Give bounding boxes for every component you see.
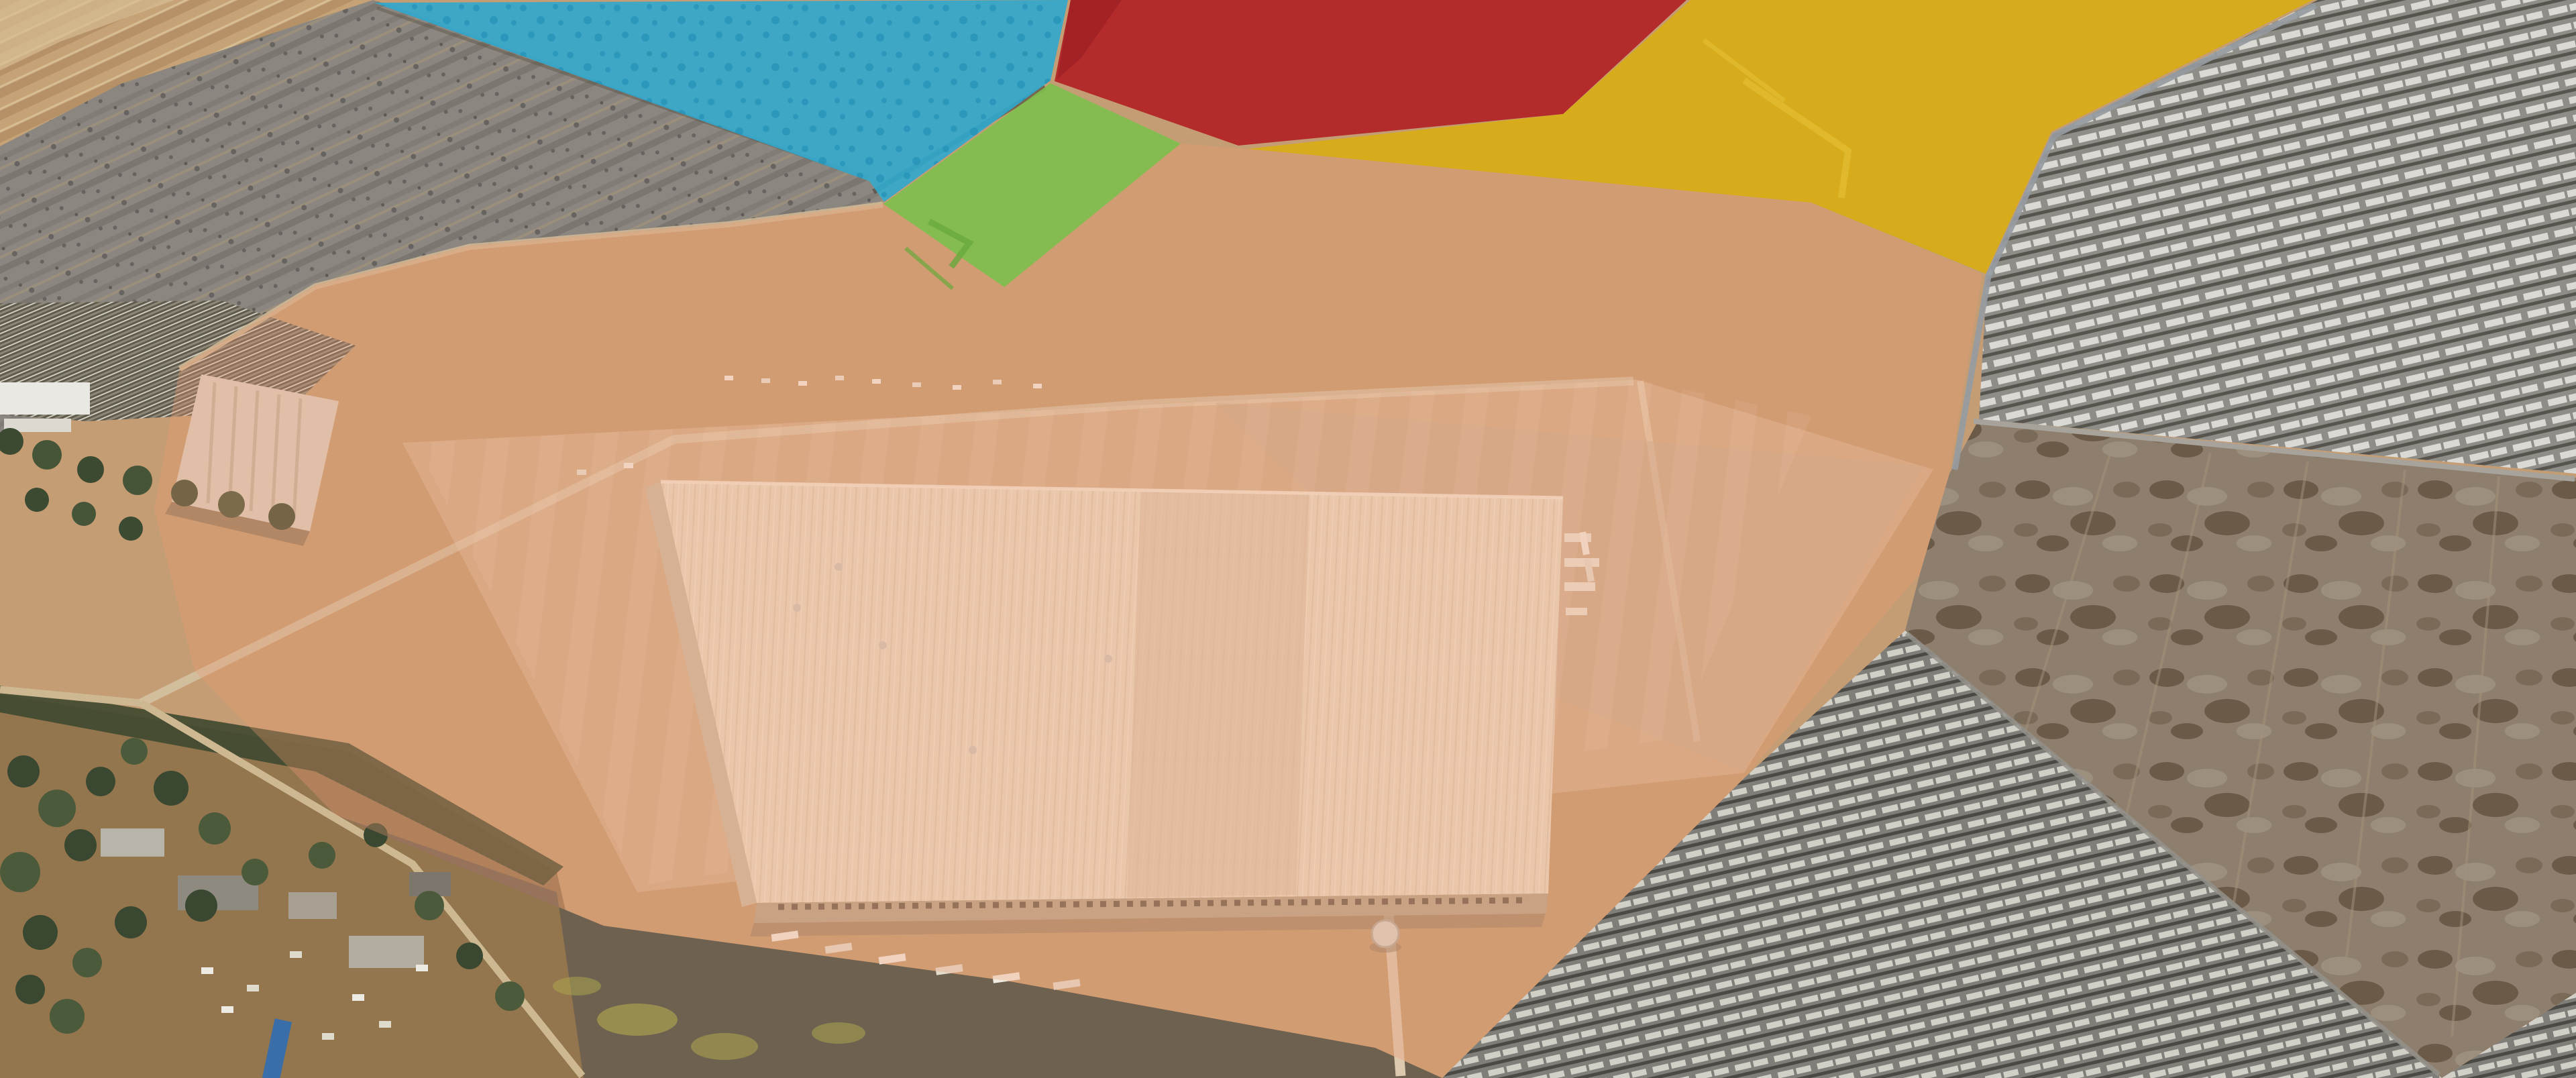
tree [32, 440, 62, 470]
vehicle [290, 951, 302, 958]
barn-roof [0, 382, 90, 415]
algae-patch [553, 977, 601, 995]
vehicle [221, 1006, 233, 1013]
tree [64, 829, 97, 861]
tree [241, 859, 268, 885]
tree [123, 466, 152, 495]
tree [456, 942, 483, 969]
tree [119, 517, 143, 541]
tree [7, 755, 40, 788]
tree [115, 906, 147, 938]
homestead-building [349, 936, 424, 968]
vehicle [322, 1033, 334, 1040]
tree [199, 812, 231, 845]
homestead-building [288, 892, 337, 919]
tree [309, 842, 335, 869]
algae-patch [597, 1004, 678, 1036]
tree [86, 767, 115, 796]
vehicle [416, 965, 428, 971]
algae-patch [691, 1033, 758, 1060]
vehicle [352, 994, 364, 1001]
vehicle [247, 985, 259, 991]
tree [23, 915, 58, 950]
tree [0, 852, 40, 892]
algae-patch [812, 1022, 865, 1044]
tree [77, 456, 104, 483]
aerial-map [0, 0, 2576, 1078]
tree [50, 999, 85, 1034]
tree [415, 891, 444, 920]
vehicle [201, 967, 213, 974]
homestead-building [101, 828, 164, 857]
tree [495, 981, 525, 1011]
tree [72, 502, 96, 526]
tree [121, 738, 148, 765]
tree [72, 948, 102, 977]
vehicle [379, 1021, 391, 1028]
tree [185, 890, 217, 922]
tree [25, 488, 49, 512]
tree [154, 771, 189, 806]
tree [38, 790, 76, 827]
tree [15, 975, 45, 1004]
aerial-map-container [0, 0, 2576, 1078]
